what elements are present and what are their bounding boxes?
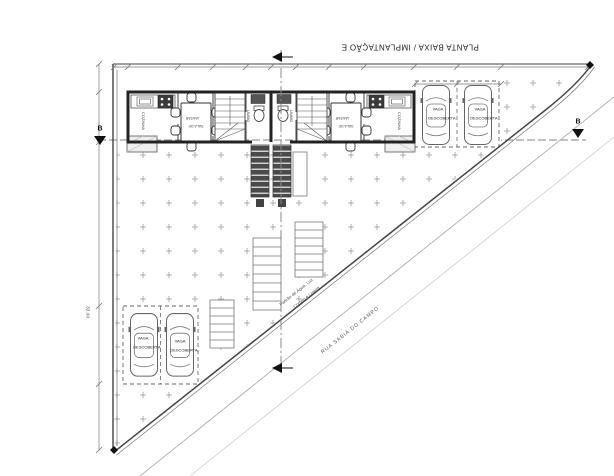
floor-plan-canvas: PLANTA BAIXA / IMPLANTAÇÃO E B B VAGA DE… [0, 0, 614, 476]
dimension-left-total: 33.00 [85, 306, 90, 318]
parking-stall-label: VAGA DESCOBERTA [126, 336, 161, 350]
section-marker-b-right: B [575, 119, 580, 126]
section-marker-b-left: B [97, 126, 102, 133]
room-label-bath-right: LAVABO [289, 110, 293, 122]
room-label-bath-left: LAVABO [246, 110, 250, 122]
parking-stall-label: VAGA DESCOBERTA [421, 107, 456, 121]
room-label-kitchen-right: COZINHA [397, 112, 402, 130]
room-label-dining-right: SALA DE JANTAR [336, 116, 357, 128]
room-label-dining-left: SALA DE JANTAR [186, 116, 207, 128]
parking-stall-label: VAGA DESCOBERTA [463, 107, 498, 121]
parking-stall-label: VAGA DESCOBERTA [163, 339, 198, 353]
room-label-kitchen-left: COZINHA [141, 112, 146, 130]
drawing-title: PLANTA BAIXA / IMPLANTAÇÃO E [341, 43, 479, 52]
plan-linework [0, 0, 614, 476]
